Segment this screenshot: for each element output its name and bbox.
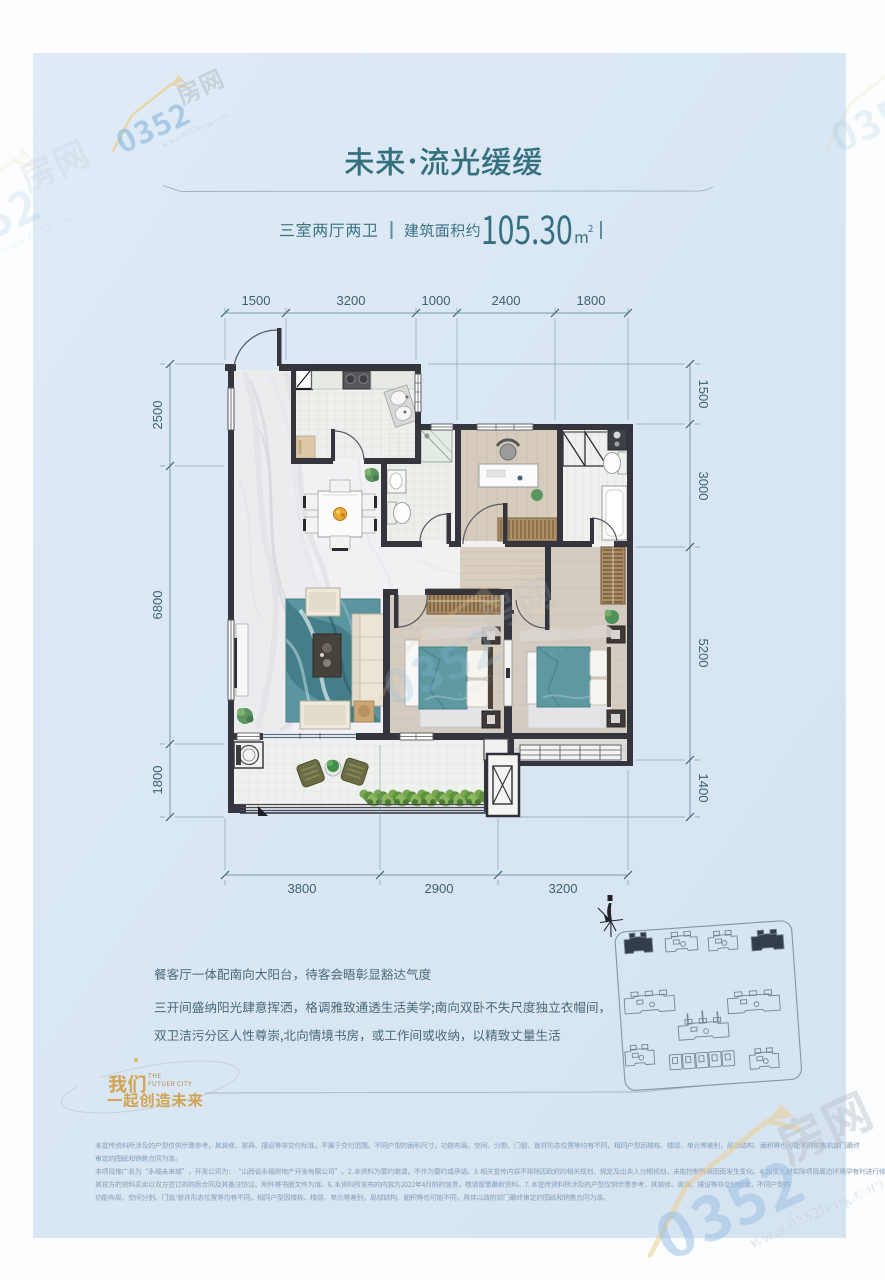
svg-text:1800: 1800 [577, 293, 606, 308]
svg-text:2500: 2500 [150, 401, 165, 430]
svg-text:1000: 1000 [422, 293, 451, 308]
svg-text:1400: 1400 [696, 774, 711, 803]
svg-text:6800: 6800 [150, 591, 165, 620]
svg-text:5200: 5200 [696, 639, 711, 668]
svg-text:1800: 1800 [150, 766, 165, 795]
svg-text:2900: 2900 [425, 881, 454, 896]
svg-text:3200: 3200 [549, 881, 578, 896]
svg-text:3200: 3200 [337, 293, 366, 308]
svg-text:3000: 3000 [696, 472, 711, 501]
svg-text:2400: 2400 [492, 293, 521, 308]
svg-text:1500: 1500 [242, 293, 271, 308]
svg-text:1500: 1500 [696, 380, 711, 409]
svg-text:3800: 3800 [288, 881, 317, 896]
